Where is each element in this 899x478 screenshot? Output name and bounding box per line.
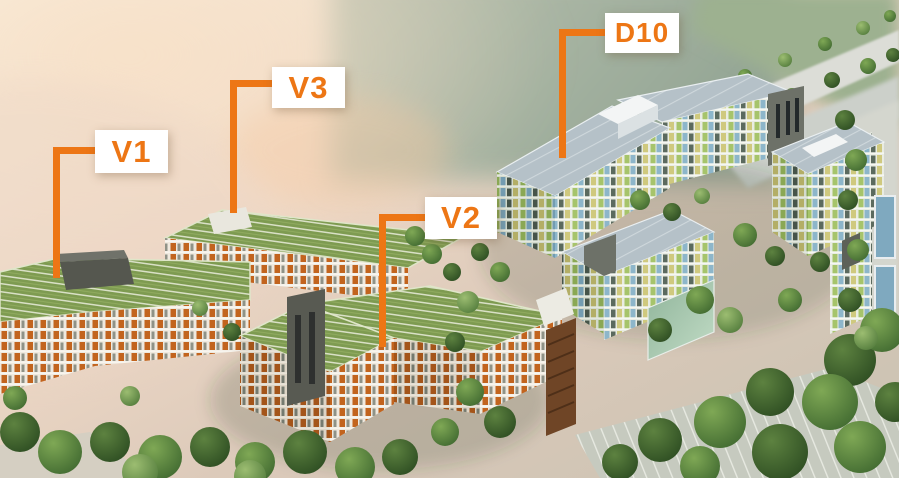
callout-v2-text: V2 xyxy=(441,200,481,236)
callout-d10-box: D10 xyxy=(605,13,679,53)
callout-v3-box: V3 xyxy=(272,67,345,108)
callout-d10-line-vertical xyxy=(559,29,566,158)
right-edge-pools xyxy=(875,196,895,322)
callout-v3-line-horizontal xyxy=(230,80,274,87)
callout-v3-text: V3 xyxy=(289,70,329,106)
callout-d10-line-horizontal xyxy=(559,29,607,36)
aerial-rendering: V1 V3 V2 D10 xyxy=(0,0,899,478)
callout-v1-line-vertical xyxy=(53,147,60,278)
callout-v1-text: V1 xyxy=(112,134,152,170)
callout-v1-line-horizontal xyxy=(53,147,97,154)
callout-v2-line-horizontal xyxy=(379,214,427,221)
scene-illustration xyxy=(0,0,899,478)
callout-v3-line-vertical xyxy=(230,80,237,213)
callout-v2-line-vertical xyxy=(379,214,386,347)
callout-v2-box: V2 xyxy=(425,197,497,239)
callout-v1-box: V1 xyxy=(95,130,168,173)
callout-d10-text: D10 xyxy=(615,17,669,49)
